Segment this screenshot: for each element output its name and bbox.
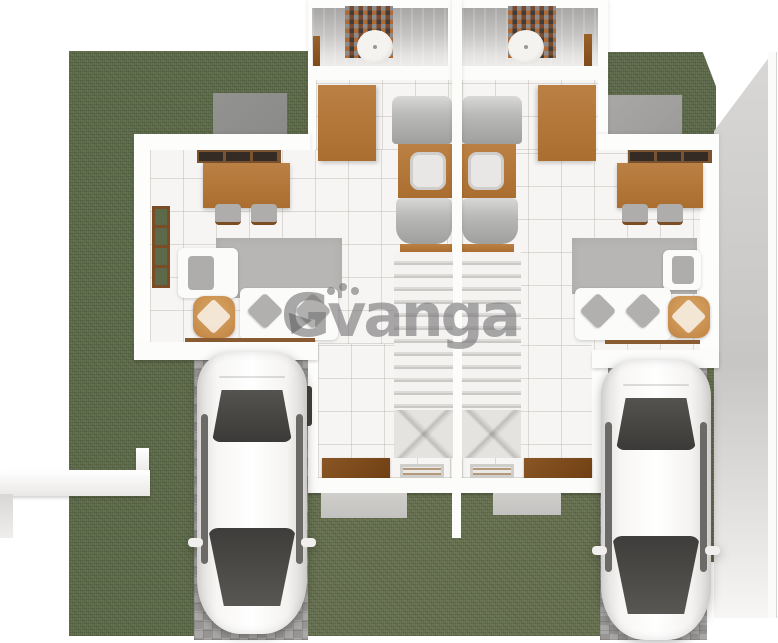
left-ottoman (193, 296, 235, 338)
car-right (601, 360, 711, 640)
right-porch-pad (493, 493, 561, 515)
right-wardrobe (538, 85, 596, 161)
right-perimeter-wall-top (768, 52, 777, 618)
backyard-pad-left (213, 93, 287, 137)
car-right-trunk-line (623, 384, 689, 386)
right-kitchen-shelf (462, 244, 514, 252)
right-chair-1 (622, 204, 648, 225)
car-right-mirror-right (705, 546, 720, 555)
right-ottoman (668, 296, 710, 338)
left-stove (396, 198, 452, 244)
left-bathroom-door (313, 36, 320, 66)
left-dining-window (197, 150, 281, 163)
floorplan-render: Gvanga (0, 0, 778, 643)
right-bathroom-door (584, 34, 592, 66)
right-armchair-cushion (672, 256, 694, 284)
right-chair-2 (657, 204, 683, 225)
garden-fence (0, 470, 150, 496)
right-shower-tray (508, 30, 544, 64)
left-porch-pad (321, 493, 407, 518)
right-dining-table (617, 163, 703, 208)
right-dining-window (628, 150, 712, 163)
left-wardrobe (318, 85, 376, 161)
car-left-trunk-line (219, 376, 285, 378)
right-stove (462, 198, 518, 244)
right-floor-grill (470, 464, 514, 478)
car-left-rear-window (212, 390, 292, 442)
left-kitchen-shelf (400, 244, 452, 252)
courtyard-pad-right (606, 95, 682, 137)
car-left-mirror-left (188, 538, 203, 547)
right-stairs-landing (462, 410, 521, 458)
left-fridge (392, 96, 452, 144)
car-left (197, 352, 307, 634)
right-stairs (462, 252, 521, 410)
left-stairs (394, 252, 453, 410)
right-fridge (462, 96, 522, 144)
right-entry-doormat (524, 458, 592, 480)
right-kitchen-sink (468, 152, 504, 190)
left-dining-table (203, 163, 290, 208)
car-left-mirror-right (301, 538, 316, 547)
left-wall-window (152, 206, 170, 288)
yard-divider-fence (452, 493, 461, 538)
left-floor-grill (400, 464, 444, 478)
left-entry-doormat (322, 458, 390, 480)
left-stairs-landing (394, 410, 453, 458)
left-shower-tray (357, 30, 393, 64)
left-chair-1 (215, 204, 241, 225)
left-armchair-cushion (188, 256, 214, 290)
party-wall (452, 0, 462, 493)
right-perimeter-wall (714, 56, 770, 618)
car-right-mirror-left (592, 546, 607, 555)
garden-fence-face (0, 494, 13, 538)
car-right-rear-window (616, 398, 696, 450)
left-chair-2 (251, 204, 277, 225)
right-floor-edge (605, 340, 700, 344)
left-kitchen-sink (410, 152, 446, 190)
front-wall-center (308, 478, 608, 493)
